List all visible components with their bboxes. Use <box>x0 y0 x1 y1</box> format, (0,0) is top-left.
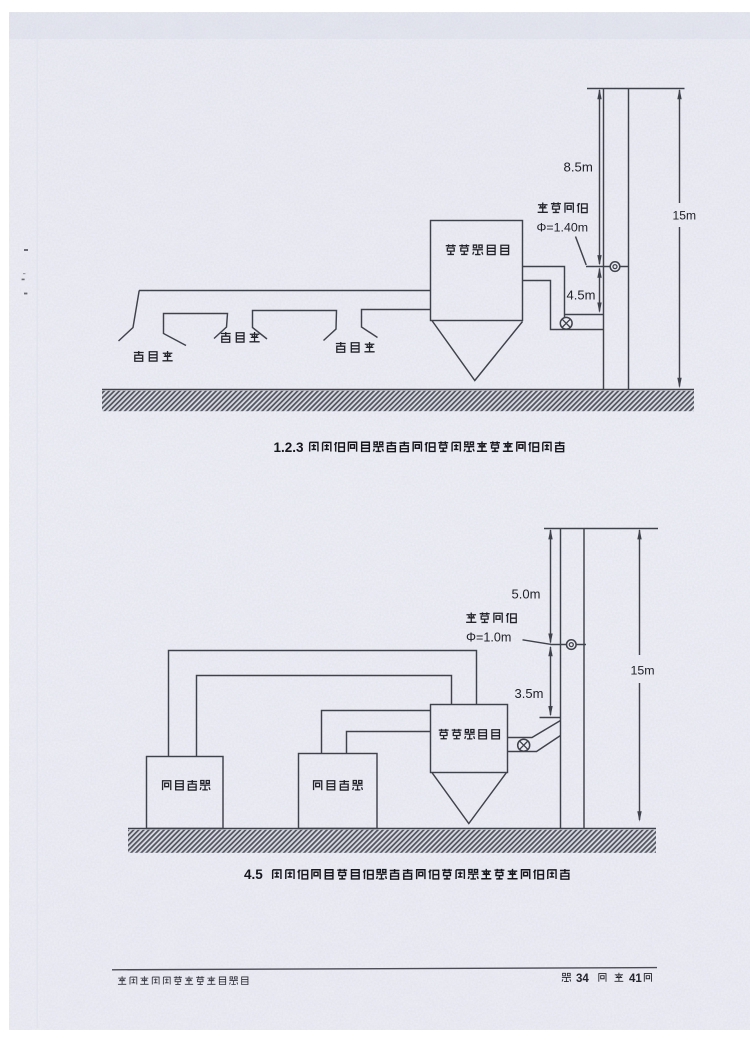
svg-text:4.5: 4.5 <box>244 867 263 882</box>
svg-text:41: 41 <box>629 973 642 985</box>
svg-text:5.0m: 5.0m <box>512 587 541 602</box>
svg-text:1.2.3: 1.2.3 <box>274 440 305 455</box>
svg-text:Φ=1.0m: Φ=1.0m <box>466 631 511 645</box>
svg-text:4.5m: 4.5m <box>567 288 596 303</box>
svg-text:15m: 15m <box>673 209 697 223</box>
svg-text:Φ=1.40m: Φ=1.40m <box>537 221 589 235</box>
svg-text:3.5m: 3.5m <box>515 686 544 701</box>
svg-text:34: 34 <box>576 973 589 985</box>
svg-text:8.5m: 8.5m <box>564 160 593 175</box>
svg-text:15m: 15m <box>631 664 655 678</box>
